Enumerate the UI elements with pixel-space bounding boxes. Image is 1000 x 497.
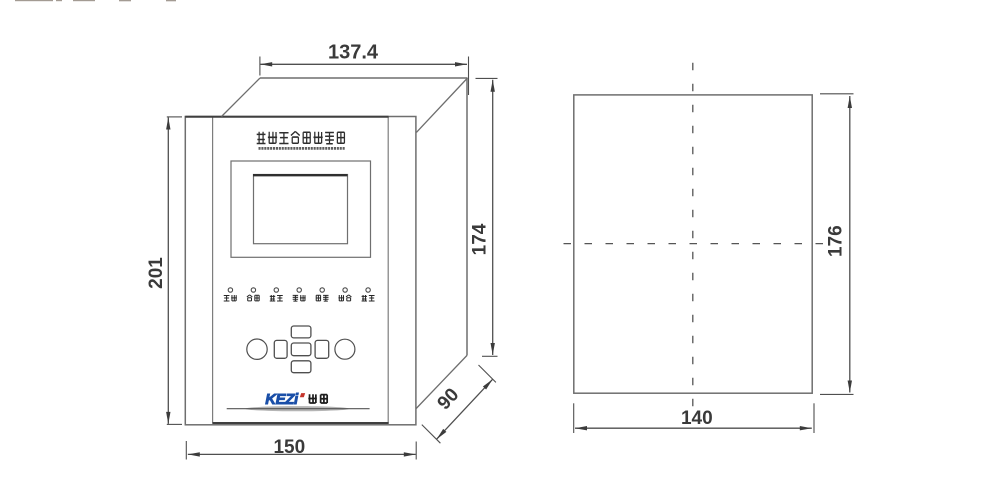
svg-text:176: 176 bbox=[826, 225, 847, 257]
svg-text:140: 140 bbox=[681, 408, 713, 429]
svg-text:137.4: 137.4 bbox=[328, 42, 379, 64]
svg-text:KEZi: KEZi bbox=[265, 391, 299, 408]
svg-text:174: 174 bbox=[470, 223, 491, 255]
svg-text:201: 201 bbox=[146, 257, 167, 289]
svg-text:90: 90 bbox=[434, 384, 464, 414]
